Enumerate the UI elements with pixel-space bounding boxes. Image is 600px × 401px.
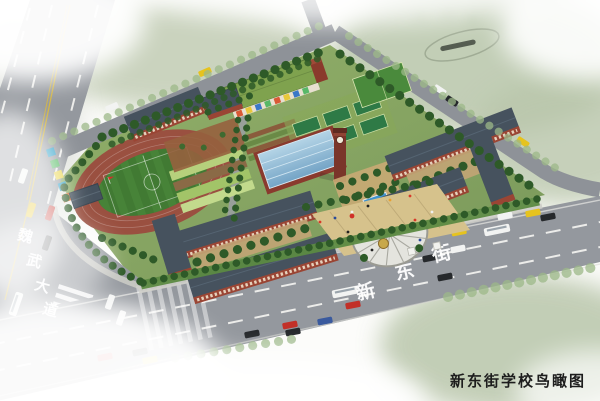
clock-face (337, 137, 344, 144)
rendering-canvas: 魏 武 大 道 新 东 街 (0, 0, 600, 401)
red-umbrella (350, 214, 355, 219)
aerial-rendering: 魏 武 大 道 新 东 街 (0, 0, 600, 401)
caption: 新东街学校鸟瞰图 (450, 370, 586, 391)
